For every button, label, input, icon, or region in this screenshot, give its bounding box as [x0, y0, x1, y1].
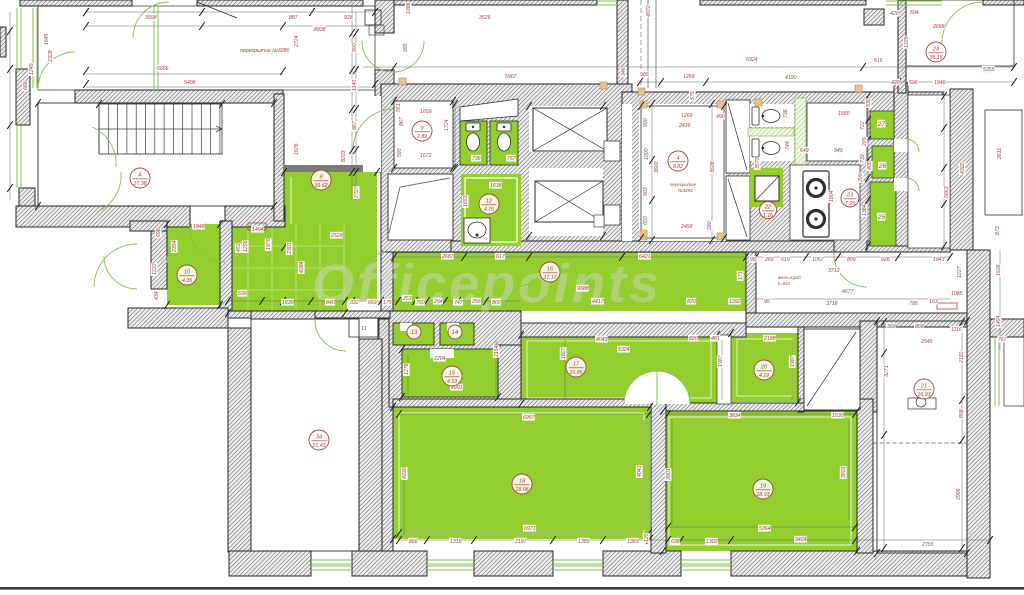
svg-text:6656: 6656 [157, 66, 169, 72]
svg-text:4.35: 4.35 [182, 278, 192, 284]
svg-text:698: 698 [156, 228, 162, 237]
svg-text:434: 434 [154, 291, 160, 300]
svg-text:4284: 4284 [299, 261, 305, 273]
svg-text:2727: 2727 [354, 185, 360, 199]
svg-text:1630: 1630 [282, 300, 294, 306]
svg-text:5324: 5324 [618, 347, 630, 353]
svg-text:595: 595 [397, 148, 403, 157]
svg-text:1086: 1086 [406, 2, 412, 14]
svg-text:1848: 1848 [193, 224, 205, 230]
svg-text:15: 15 [449, 371, 456, 377]
svg-text:2187: 2187 [514, 539, 528, 545]
svg-text:254: 254 [433, 299, 443, 305]
svg-text:420: 420 [890, 11, 899, 17]
svg-text:3901: 3901 [841, 466, 847, 478]
svg-text:1987: 1987 [718, 354, 724, 367]
svg-text:747: 747 [454, 300, 464, 306]
svg-text:95: 95 [750, 257, 756, 263]
svg-text:3608: 3608 [710, 161, 716, 173]
svg-text:4417: 4417 [592, 299, 605, 305]
svg-text:2188: 2188 [763, 336, 776, 342]
svg-text:25: 25 [877, 214, 885, 221]
svg-text:11: 11 [361, 326, 367, 332]
svg-text:873: 873 [995, 226, 1001, 235]
svg-text:905: 905 [640, 72, 649, 78]
svg-text:1222: 1222 [152, 263, 158, 275]
svg-text:332: 332 [350, 300, 359, 306]
svg-text:1454: 1454 [996, 315, 1002, 327]
svg-text:840: 840 [326, 300, 335, 306]
svg-text:900: 900 [643, 118, 649, 127]
svg-text:668: 668 [23, 81, 29, 90]
svg-text:1318: 1318 [450, 539, 462, 545]
svg-text:795: 795 [909, 301, 918, 307]
svg-text:2192: 2192 [959, 351, 965, 364]
svg-text:19: 19 [760, 484, 766, 490]
svg-text:757: 757 [507, 156, 517, 162]
svg-text:3718: 3718 [826, 301, 838, 307]
svg-text:9688: 9688 [577, 286, 589, 292]
svg-text:1225: 1225 [904, 36, 910, 48]
svg-text:2436: 2436 [678, 123, 691, 129]
svg-text:22: 22 [764, 205, 772, 211]
svg-text:1269: 1269 [683, 74, 695, 80]
svg-text:Officepoints: Officepoints [312, 254, 662, 314]
svg-text:28.93: 28.93 [756, 492, 770, 498]
svg-text:26: 26 [878, 163, 886, 170]
svg-text:2204: 2204 [433, 356, 446, 362]
svg-text:1000: 1000 [644, 148, 650, 160]
svg-text:928: 928 [344, 15, 353, 21]
svg-text:1383: 1383 [627, 539, 639, 545]
svg-text:299: 299 [858, 173, 864, 183]
svg-text:125: 125 [644, 533, 650, 542]
svg-text:269: 269 [764, 257, 774, 263]
svg-text:2545: 2545 [920, 339, 933, 345]
svg-text:5408: 5408 [184, 80, 196, 86]
svg-text:867: 867 [352, 120, 358, 130]
svg-text:265: 265 [862, 137, 868, 147]
svg-text:3712: 3712 [828, 268, 840, 274]
svg-text:34: 34 [316, 435, 322, 441]
svg-text:928: 928 [881, 257, 890, 263]
svg-text:2458: 2458 [680, 224, 693, 230]
svg-text:6421: 6421 [639, 254, 651, 260]
svg-text:767: 767 [998, 337, 1008, 343]
svg-text:A: A [137, 173, 142, 179]
svg-text:253: 253 [402, 296, 412, 302]
svg-text:2755: 2755 [921, 542, 934, 548]
svg-text:1672: 1672 [420, 153, 432, 159]
svg-text:3901: 3901 [666, 468, 672, 480]
svg-text:17.17: 17.17 [544, 275, 558, 281]
svg-text:1724: 1724 [444, 119, 450, 131]
svg-text:1249: 1249 [29, 63, 35, 75]
svg-text:820: 820 [689, 336, 698, 342]
svg-text:1676: 1676 [294, 143, 300, 155]
svg-text:995: 995 [403, 43, 409, 52]
svg-text:39.62: 39.62 [315, 183, 328, 189]
svg-text:1140: 1140 [352, 80, 358, 91]
svg-text:10: 10 [184, 270, 191, 276]
svg-text:561: 561 [396, 103, 402, 112]
svg-text:16: 16 [547, 267, 554, 273]
svg-text:95: 95 [764, 299, 770, 305]
svg-text:820: 820 [687, 299, 696, 305]
svg-text:516: 516 [874, 58, 883, 64]
svg-text:2668: 2668 [932, 24, 945, 30]
svg-text:575: 575 [690, 91, 696, 100]
svg-text:1057: 1057 [812, 257, 825, 263]
svg-text:3424: 3424 [795, 537, 807, 543]
svg-text:16.93: 16.93 [918, 392, 931, 398]
svg-text:1827: 1827 [561, 346, 567, 359]
svg-text:9: 9 [420, 126, 423, 132]
svg-text:3598: 3598 [145, 15, 157, 21]
svg-text:4.53: 4.53 [447, 379, 457, 385]
svg-text:3570: 3570 [755, 157, 761, 169]
svg-text:вент.короб: вент.короб [778, 275, 801, 280]
svg-text:2301: 2301 [287, 242, 293, 255]
svg-text:650: 650 [643, 216, 649, 225]
svg-text:163: 163 [929, 299, 938, 305]
svg-text:638: 638 [671, 539, 680, 545]
svg-text:2.89: 2.89 [416, 134, 427, 140]
svg-text:739: 739 [860, 154, 866, 163]
svg-text:2154: 2154 [494, 345, 500, 358]
svg-text:27: 27 [877, 121, 885, 128]
svg-text:1946: 1946 [934, 80, 946, 86]
svg-text:903: 903 [643, 187, 649, 196]
svg-text:1580: 1580 [838, 111, 850, 117]
svg-text:6324: 6324 [746, 57, 758, 63]
svg-text:5907: 5907 [505, 74, 518, 80]
svg-text:4.76: 4.76 [484, 207, 494, 213]
svg-text:1392: 1392 [729, 299, 741, 305]
svg-text:4072: 4072 [646, 5, 652, 17]
svg-text:6971: 6971 [524, 526, 536, 532]
svg-text:1.16: 1.16 [763, 213, 773, 219]
svg-text:1278: 1278 [404, 363, 410, 375]
svg-text:перекрытие №3280: перекрытие №3280 [240, 48, 289, 54]
svg-text:14: 14 [452, 330, 459, 336]
svg-text:1943: 1943 [933, 257, 945, 263]
svg-text:21.43: 21.43 [312, 443, 326, 449]
svg-text:2996: 2996 [956, 488, 962, 501]
svg-text:530: 530 [866, 98, 872, 107]
svg-text:1256: 1256 [243, 240, 249, 252]
svg-text:3271: 3271 [884, 365, 890, 377]
svg-text:4302: 4302 [960, 162, 966, 174]
svg-text:24: 24 [932, 47, 939, 53]
svg-text:809: 809 [847, 257, 856, 263]
svg-text:738: 738 [783, 109, 789, 118]
svg-text:13: 13 [411, 330, 418, 336]
svg-text:4190: 4190 [785, 75, 797, 81]
svg-text:17.38: 17.38 [134, 181, 147, 187]
svg-text:1385: 1385 [578, 539, 590, 545]
svg-text:1116: 1116 [951, 327, 962, 333]
svg-text:619: 619 [781, 257, 790, 263]
svg-text:1227: 1227 [957, 265, 963, 278]
svg-text:750: 750 [416, 300, 425, 306]
svg-text:23: 23 [846, 193, 854, 199]
svg-text:3526: 3526 [479, 15, 491, 21]
svg-text:3600: 3600 [654, 161, 660, 173]
svg-text:17: 17 [573, 362, 580, 368]
svg-text:1970: 1970 [266, 238, 272, 250]
svg-text:866: 866 [409, 539, 418, 545]
svg-text:35.15: 35.15 [930, 55, 943, 61]
svg-text:21: 21 [920, 384, 927, 390]
svg-text:2611: 2611 [997, 148, 1003, 160]
svg-text:949: 949 [834, 148, 843, 154]
svg-text:736: 736 [472, 156, 481, 162]
svg-text:20: 20 [760, 365, 768, 371]
svg-text:6957: 6957 [523, 415, 536, 421]
svg-text:867: 867 [399, 116, 405, 126]
svg-text:4.19: 4.19 [759, 373, 769, 379]
svg-text:1638: 1638 [490, 183, 502, 189]
svg-text:1804: 1804 [829, 190, 835, 202]
svg-text:1936: 1936 [996, 264, 1002, 276]
svg-text:1653: 1653 [463, 195, 469, 207]
svg-text:1269: 1269 [681, 113, 693, 119]
svg-text:4677: 4677 [842, 289, 855, 295]
svg-text:2354: 2354 [172, 240, 178, 253]
svg-text:1530: 1530 [832, 413, 844, 419]
svg-text:868: 868 [915, 324, 924, 330]
svg-text:639: 639 [238, 291, 247, 297]
svg-text:8.82: 8.82 [673, 164, 683, 170]
svg-text:256: 256 [471, 299, 481, 305]
svg-text:1302: 1302 [706, 539, 718, 545]
svg-text:946: 946 [621, 67, 627, 76]
svg-text:3834: 3834 [729, 413, 741, 419]
svg-text:594: 594 [910, 10, 919, 16]
svg-text:617: 617 [496, 254, 506, 260]
svg-text:722: 722 [860, 121, 866, 130]
svg-text:1085: 1085 [951, 291, 963, 297]
svg-text:744: 744 [785, 141, 791, 150]
svg-text:280: 280 [707, 221, 713, 231]
svg-text:453: 453 [236, 243, 242, 252]
svg-text:4043: 4043 [596, 337, 608, 343]
svg-text:28.08: 28.08 [515, 487, 529, 493]
svg-text:171: 171 [738, 271, 744, 280]
svg-text:1659: 1659 [420, 109, 432, 115]
svg-text:8938: 8938 [314, 27, 326, 33]
svg-text:800: 800 [492, 300, 501, 306]
svg-text:12: 12 [486, 199, 493, 205]
svg-text:1384: 1384 [862, 204, 868, 216]
svg-text:1987: 1987 [790, 354, 796, 367]
svg-text:887: 887 [289, 15, 299, 21]
svg-text:2328: 2328 [48, 50, 54, 63]
svg-text:5355: 5355 [983, 67, 995, 73]
svg-text:h=553: h=553 [778, 281, 790, 286]
svg-text:8203: 8203 [341, 150, 347, 162]
svg-text:669: 669 [368, 300, 377, 306]
svg-text:990: 990 [352, 43, 358, 52]
svg-text:2724: 2724 [294, 35, 300, 48]
svg-text:420: 420 [891, 80, 900, 86]
svg-text:4: 4 [676, 156, 679, 162]
svg-text:2529: 2529 [330, 233, 343, 239]
svg-text:5364: 5364 [759, 526, 771, 532]
svg-text:7.95: 7.95 [845, 201, 855, 207]
svg-text:858: 858 [959, 409, 965, 418]
svg-text:490: 490 [716, 114, 725, 120]
svg-text:1494: 1494 [252, 227, 264, 233]
svg-text:10.86: 10.86 [570, 370, 583, 376]
svg-text:2687: 2687 [441, 254, 455, 260]
svg-text:175: 175 [383, 300, 392, 306]
svg-text:18: 18 [519, 479, 526, 485]
svg-text:461: 461 [711, 336, 720, 342]
svg-text:400: 400 [867, 161, 873, 170]
svg-text:596: 596 [909, 80, 918, 86]
svg-text:4041: 4041 [637, 465, 643, 477]
svg-text:369: 369 [887, 324, 896, 330]
svg-text:1645: 1645 [44, 33, 50, 45]
svg-text:перекрытие: перекрытие [670, 182, 697, 187]
svg-text:№3294: №3294 [678, 188, 693, 193]
svg-text:4030: 4030 [402, 467, 408, 479]
svg-text:649: 649 [800, 148, 809, 154]
svg-text:5663: 5663 [944, 186, 950, 198]
